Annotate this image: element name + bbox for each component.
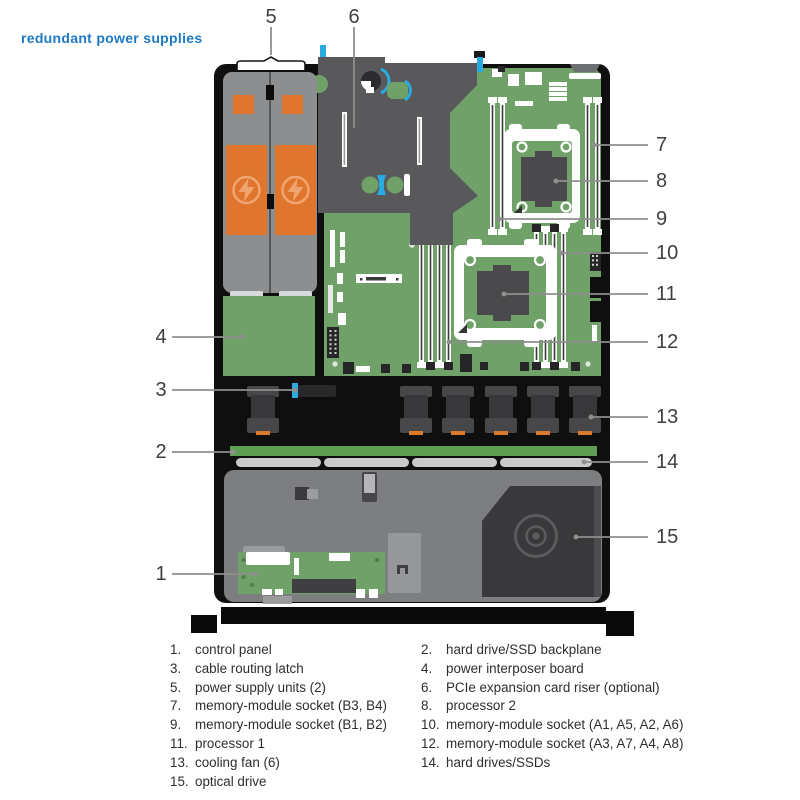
callout-15-label: 15 bbox=[656, 526, 678, 548]
legend-num: 12. bbox=[421, 735, 446, 754]
legend-item-12: 12.memory-module socket (A3, A7, A4, A8) bbox=[421, 735, 771, 754]
legend-item-5: 5.power supply units (2) bbox=[170, 679, 415, 698]
legend-num: 3. bbox=[170, 660, 195, 679]
fan-6 bbox=[569, 386, 601, 435]
legend-item-9: 9.memory-module socket (B1, B2) bbox=[170, 716, 415, 735]
callout-14-label: 14 bbox=[656, 451, 678, 473]
legend-num: 11. bbox=[170, 735, 195, 754]
front-panel-area bbox=[224, 470, 602, 604]
optical-drive bbox=[482, 486, 601, 597]
legend-num: 10. bbox=[421, 716, 446, 735]
legend-item-13: 13.cooling fan (6) bbox=[170, 754, 415, 773]
chassis-right-foot bbox=[606, 611, 634, 636]
callout-5-label: 5 bbox=[265, 6, 276, 28]
hard-drives-ssds bbox=[236, 458, 592, 467]
legend-label: memory-module socket (B3, B4) bbox=[195, 697, 415, 716]
legend-num: 2. bbox=[421, 641, 446, 660]
legend-num: 14. bbox=[421, 754, 446, 773]
legend-label: power supply units (2) bbox=[195, 679, 415, 698]
legend-label: processor 2 bbox=[446, 697, 771, 716]
legend-item-14: 14.hard drives/SSDs bbox=[421, 754, 771, 773]
fan-4 bbox=[485, 386, 517, 435]
legend-num: 15. bbox=[170, 773, 195, 792]
chassis-left-foot bbox=[191, 615, 217, 633]
legend-num: 13. bbox=[170, 754, 195, 773]
server-interior-diagram: 5 6 7 8 9 10 11 12 13 14 15 4 3 2 1 bbox=[0, 0, 800, 648]
legend-label: control panel bbox=[195, 641, 415, 660]
legend-column-right: 2.hard drive/SSD backplane 4.power inter… bbox=[421, 641, 771, 773]
legend-label: cooling fan (6) bbox=[195, 754, 415, 773]
fan-1 bbox=[247, 386, 279, 435]
callout-3-label: 3 bbox=[155, 379, 166, 401]
legend-label: cable routing latch bbox=[195, 660, 415, 679]
callout-12-label: 12 bbox=[656, 331, 678, 353]
callout-4-label: 4 bbox=[155, 326, 166, 348]
legend-label: PCIe expansion card riser (optional) bbox=[446, 679, 771, 698]
fan-5 bbox=[527, 386, 559, 435]
callout-8-label: 8 bbox=[656, 170, 667, 192]
pin-header bbox=[327, 327, 339, 358]
power-supply-units bbox=[223, 72, 317, 300]
legend-item-10: 10.memory-module socket (A1, A5, A2, A6) bbox=[421, 716, 771, 735]
legend-item-6: 6.PCIe expansion card riser (optional) bbox=[421, 679, 771, 698]
legend-item-8: 8.processor 2 bbox=[421, 697, 771, 716]
legend-item-1: 1.control panel bbox=[170, 641, 415, 660]
legend-item-3: 3.cable routing latch bbox=[170, 660, 415, 679]
callout-1-label: 1 bbox=[155, 563, 166, 585]
power-interposer-board bbox=[223, 296, 315, 376]
legend-num: 7. bbox=[170, 697, 195, 716]
legend-label: memory-module socket (B1, B2) bbox=[195, 716, 415, 735]
fan-3 bbox=[442, 386, 474, 435]
callout-11-label: 11 bbox=[656, 283, 677, 305]
legend-num: 8. bbox=[421, 697, 446, 716]
legend-item-15: 15.optical drive bbox=[170, 773, 415, 792]
legend-num: 4. bbox=[421, 660, 446, 679]
vga-connector bbox=[570, 64, 600, 72]
callout-13-label: 13 bbox=[656, 406, 678, 428]
callout-2-label: 2 bbox=[155, 441, 166, 463]
legend-num: 1. bbox=[170, 641, 195, 660]
legend-item-11: 11.processor 1 bbox=[170, 735, 415, 754]
legend-label: memory-module socket (A1, A5, A2, A6) bbox=[446, 716, 771, 735]
legend-label: power interposer board bbox=[446, 660, 771, 679]
page-title: redundant power supplies bbox=[21, 30, 202, 46]
callout-10-label: 10 bbox=[656, 242, 678, 264]
legend-label: hard drive/SSD backplane bbox=[446, 641, 771, 660]
legend-num: 5. bbox=[170, 679, 195, 698]
legend-label: memory-module socket (A3, A7, A4, A8) bbox=[446, 735, 771, 754]
legend-label: optical drive bbox=[195, 773, 415, 792]
legend-num: 6. bbox=[421, 679, 446, 698]
hdd-ssd-backplane bbox=[230, 446, 597, 456]
lcd-display bbox=[246, 552, 290, 565]
legend-item-2: 2.hard drive/SSD backplane bbox=[421, 641, 771, 660]
psu-bracket bbox=[237, 57, 305, 70]
front-bezel bbox=[221, 607, 606, 624]
legend-item-7: 7.memory-module socket (B3, B4) bbox=[170, 697, 415, 716]
legend-label: processor 1 bbox=[195, 735, 415, 754]
page: redundant power supplies bbox=[0, 0, 800, 800]
callout-6-label: 6 bbox=[348, 6, 359, 28]
legend-column-left: 1.control panel 3.cable routing latch 5.… bbox=[170, 641, 415, 791]
fan-2 bbox=[400, 386, 432, 435]
legend-label: hard drives/SSDs bbox=[446, 754, 771, 773]
legend-num: 9. bbox=[170, 716, 195, 735]
callout-9-label: 9 bbox=[656, 208, 667, 230]
legend-item-4: 4.power interposer board bbox=[421, 660, 771, 679]
processor-2 bbox=[504, 124, 580, 229]
callout-7-label: 7 bbox=[656, 134, 667, 156]
